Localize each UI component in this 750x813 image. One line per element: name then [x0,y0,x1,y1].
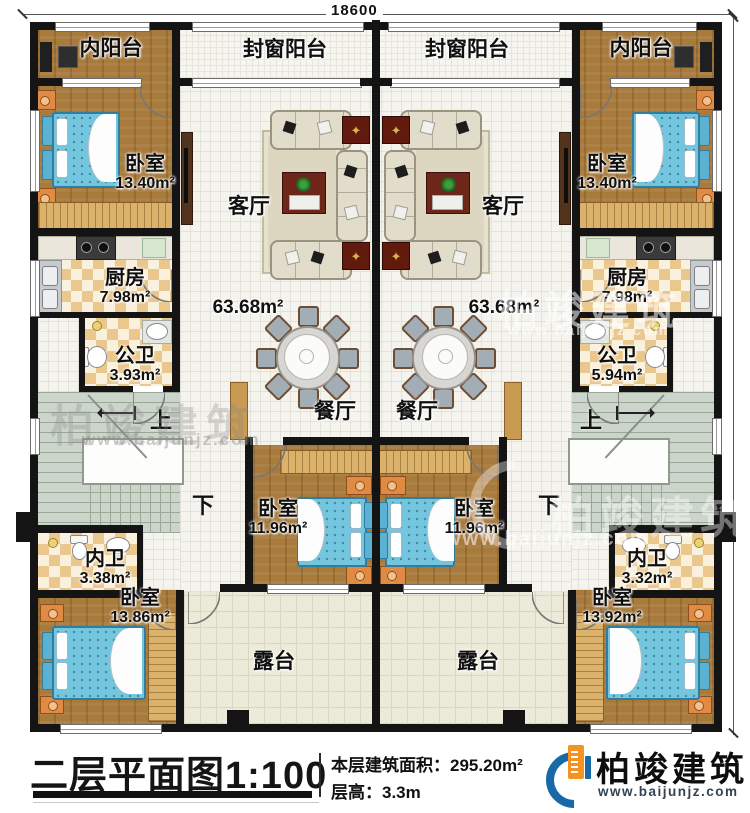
wall [283,437,372,445]
throw-pillow [456,121,470,135]
floor-area-label: 本层建筑面积： [331,756,450,775]
wall [360,78,372,86]
room-label-bedroom-bottom: 卧室13.92m² [557,587,667,627]
room-name: 内阳台 [56,37,166,61]
room-name: 露台 [219,650,329,674]
room-name: 内卫 [50,548,160,570]
wall [619,386,673,392]
nightstand-knob [48,701,58,711]
dining-chair [256,348,277,369]
throw-pillow [311,251,325,265]
wardrobe [378,450,472,474]
room-name: 卧室 [552,153,662,175]
throw-pillow [285,250,301,266]
room-area: 63.68m² [193,297,303,318]
throw-pillow [317,120,333,136]
sink-basin [694,266,710,286]
floor-height-value: 3.3m [382,783,421,802]
room-area: 3.93m² [80,367,190,385]
stair-arrowhead [650,408,660,418]
throw-pillow [283,121,297,135]
floor-height-line: 层高：3.3m [331,778,421,803]
sink-basin [42,266,58,286]
cutting-board [586,238,610,258]
room-area: 11.96m² [223,520,333,538]
throw-pillow [344,205,360,221]
room-name: 客厅 [194,195,304,219]
window [192,22,364,32]
wall-pier [227,710,249,732]
unit-right: ✦ ✦ [376,20,722,732]
nightstand-knob [387,481,397,491]
nightstand [346,566,372,585]
window [590,724,692,734]
window [712,418,722,455]
wall [30,228,180,236]
room-area: 13.40m² [552,175,662,193]
logo-building-windows [571,749,578,773]
nightstand-knob [694,701,704,711]
watermark-url: www.baijunjz.com [445,528,650,551]
room-label-public-bath: 公卫5.94m² [562,345,672,385]
dining-table-center [299,349,314,364]
unit-left: ✦ ✦ [30,20,376,732]
wall [180,78,192,86]
wall-party [376,20,380,732]
watermark-url: www.baijunjz.com [508,322,669,339]
wardrobe [38,202,174,230]
footer-divider [319,753,321,797]
room-name: 内卫 [592,548,702,570]
title-underline [33,791,312,798]
pillow [684,662,696,690]
nightstand [346,476,372,495]
floor-area-line: 本层建筑面积：295.20m² [331,751,523,776]
throw-pillow [452,250,468,266]
room-name: 封窗阳台 [412,38,522,62]
headboard-cushion [699,662,710,690]
headboard-cushion [699,632,710,660]
window [30,110,40,192]
room-name: 餐厅 [362,400,472,424]
floor-area-value: 295.20m² [450,756,523,775]
pillow [390,503,402,529]
nightstand [688,604,712,622]
pillow [56,150,68,178]
sink-basin [42,289,58,309]
wall [572,228,722,236]
room-name: 封窗阳台 [230,38,340,62]
window-balcony [192,78,362,88]
hall-floor [38,318,85,392]
wall [690,78,722,86]
room-label-bedroom-top: 卧室13.40m² [552,153,662,193]
room-label-terrace: 露台 [219,650,329,674]
dimension-top-label: 18600 [326,2,383,19]
room-area: 13.40m² [90,175,200,193]
plan-canvas: ✦ ✦ [30,20,722,732]
room-label-enclosed-balcony: 封窗阳台 [412,38,522,62]
room-label-bedroom-top: 卧室13.40m² [90,153,200,193]
window [602,22,697,32]
bath-lamp [48,538,58,548]
plant [296,177,311,192]
nightstand [380,566,406,585]
door-arc [140,86,172,118]
throw-pillow [420,120,436,136]
throw-pillow [393,205,409,221]
cutting-board [142,238,166,258]
room-label-living: 客厅 [194,195,304,219]
room-name: 卧室 [85,587,195,609]
pillow [56,118,68,146]
room-label-living: 客厅 [448,195,558,219]
room-label-terrace: 露台 [423,650,533,674]
room-label-private-bath: 内卫3.38m² [50,548,160,588]
window [403,584,485,594]
nightstand [40,604,64,622]
pillow [684,632,696,660]
pillow [684,118,696,146]
logo-building-icon [568,745,584,779]
room-name: 公卫 [80,345,190,367]
nightstand-knob [387,571,397,581]
brand-url: www.baijunjz.com [598,784,739,799]
room-area: 13.92m² [557,609,667,627]
throw-pillow [344,165,358,179]
logo-building-bar-icon [585,756,591,779]
window [62,78,142,88]
bath-sink [146,323,168,340]
pillow [56,632,68,660]
stair-landing [568,438,670,485]
nightstand-knob [355,571,365,581]
end-table: ✦ [382,116,410,144]
room-name: 卧室 [223,498,333,520]
sofa [270,110,352,150]
room-name: 厨房 [70,267,180,289]
stove [636,236,676,260]
sink-basin [694,289,710,309]
sofa [384,150,416,242]
hall-cabinet [504,382,522,440]
stair-up-label: 上 [573,403,609,435]
room-label-enclosed-balcony: 封窗阳台 [230,38,340,62]
nightstand-knob [40,96,50,106]
balcony-cabinet [700,42,712,72]
burner [643,242,654,253]
room-name: 卧室 [557,587,667,609]
room-area: 13.86m² [85,609,195,627]
window [712,110,722,192]
pillow [684,150,696,178]
sofa [400,110,482,150]
room-label-dining: 餐厅 [362,400,472,424]
nightstand-knob [702,96,712,106]
pillow [390,532,402,558]
room-name: 内阳台 [586,37,696,61]
bath-lamp [92,321,102,331]
room-label-inner-balcony: 内阳台 [586,37,696,61]
pillow [350,503,362,529]
pillow [56,662,68,690]
room-name: 卧室 [90,153,200,175]
room-label-public-bath: 公卫3.93m² [80,345,190,385]
room-name: 公卫 [562,345,672,367]
room-label-bedroom-mid: 卧室11.96m² [223,498,333,538]
window [388,22,560,32]
floor-height-label: 层高： [331,783,382,802]
throw-pillow [395,165,409,179]
headboard-cushion [699,116,710,146]
dining-chair [393,348,414,369]
label-living-area: 63.68m² [193,297,303,318]
dining-chair [338,348,359,369]
room-label-bedroom-bottom: 卧室13.86m² [85,587,195,627]
room-label-inner-balcony: 内阳台 [56,37,166,61]
burner [98,242,109,253]
end-table: ✦ [342,116,370,144]
kitchen-sink-counter [690,260,714,314]
headboard-cushion [699,150,710,180]
watermark-url: www.baijunjz.com [82,430,261,450]
window [30,418,40,455]
end-table: ✦ [382,242,410,270]
window [55,22,150,32]
wall [560,78,572,86]
floor-plan-sheet: 18600 18400 [0,0,750,813]
room-area: 3.32m² [592,570,702,588]
wall [380,437,469,445]
sofa [270,240,352,280]
wall [380,78,392,86]
room-label-private-bath: 内卫3.32m² [592,548,702,588]
end-table: ✦ [342,242,370,270]
nightstand-knob [694,609,704,619]
kitchen-sink-counter [38,260,62,314]
window [267,584,349,594]
room-area: 5.94m² [562,367,672,385]
wardrobe [280,450,374,474]
window [60,724,162,734]
burner [660,242,671,253]
window [712,260,722,317]
dining-table-center [438,349,453,364]
pillow [350,532,362,558]
stove [76,236,116,260]
stair-direction-arrow [616,412,652,414]
dimension-line-right [733,18,734,735]
dining-chair [475,348,496,369]
wall [30,525,143,533]
window [610,78,690,88]
throw-pillow [428,251,442,265]
burner [81,242,92,253]
room-name: 客厅 [448,195,558,219]
wall [30,312,180,318]
title-underline-thin [33,802,319,803]
nightstand-knob [48,609,58,619]
nightstand-knob [355,481,365,491]
stair-down-label: 下 [185,488,221,520]
wall [30,78,62,86]
wardrobe [578,202,714,230]
room-name: 露台 [423,650,533,674]
sofa [336,150,368,242]
window-balcony [390,78,560,88]
door-arc [580,86,612,118]
room-area: 3.38m² [50,570,160,588]
wall-stub [16,512,38,542]
wall-pier [503,710,525,732]
nightstand [380,476,406,495]
balcony-cabinet [40,42,52,72]
bed-sheet [110,628,142,694]
sofa [400,240,482,280]
room-label-kitchen: 厨房7.98m² [70,267,180,307]
window [30,260,40,317]
plant [441,177,456,192]
room-area: 7.98m² [70,289,180,307]
